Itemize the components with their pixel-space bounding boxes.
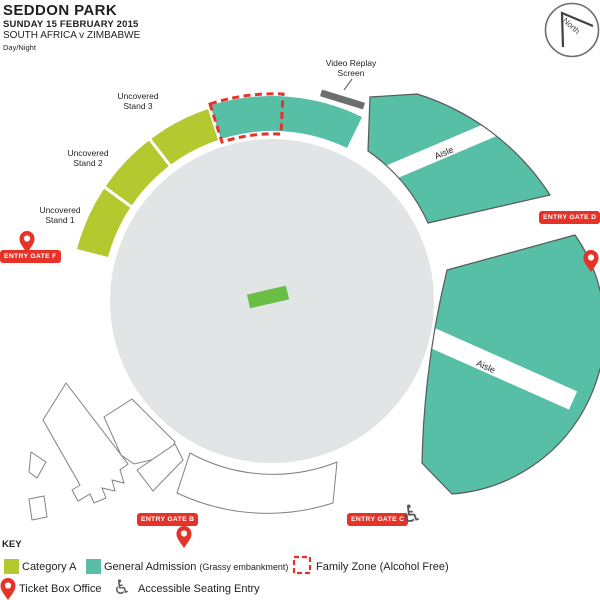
label-video-replay-screen: Video Replay Screen (319, 59, 383, 78)
seddon-park-seating-map: SEDDON PARK SUNDAY 15 FEBRUARY 2015 SOUT… (0, 0, 600, 600)
entry-gate-f-badge: ENTRY GATE F (0, 250, 61, 263)
legend-label-category-a: Category A (22, 561, 76, 573)
legend-swatch-category-a (4, 559, 19, 574)
page-title: SEDDON PARK (3, 2, 117, 19)
key-title: KEY (2, 539, 22, 550)
stand-label-line: Stand 2 (56, 159, 120, 169)
building-outline (29, 452, 46, 478)
event-fixture: SOUTH AFRICA v ZIMBABWE (3, 30, 140, 41)
stand-label-line: Stand 3 (106, 102, 170, 112)
wheelchair-icon: ♿ (401, 503, 423, 527)
entry-gate-c-badge: ENTRY GATE C (347, 513, 408, 526)
label-uncovered-stand-1: Uncovered Stand 1 (28, 206, 92, 225)
legend-label-family-zone: Family Zone (Alcohol Free) (316, 561, 449, 573)
legend-label-note: (Grassy embankment) (199, 562, 288, 572)
general-admission-wedge-lower (422, 235, 600, 494)
stand-label-line: Stand 1 (28, 216, 92, 226)
legend-label-general-admission: General Admission (Grassy embankment) (104, 561, 288, 573)
ticket-box-office-pin-gate-b (177, 526, 192, 548)
label-uncovered-stand-3: Uncovered Stand 3 (106, 92, 170, 111)
entry-gate-b-badge: ENTRY GATE B (137, 513, 198, 526)
video-replay-leader-line (344, 79, 352, 90)
event-date: SUNDAY 15 FEBRUARY 2015 (3, 19, 139, 30)
wheelchair-icon: ♿ (113, 578, 131, 598)
building-outline (29, 496, 47, 520)
legend-swatch-general-admission (86, 559, 101, 574)
legend-swatch-family-zone (294, 557, 310, 573)
video-label-line: Screen (319, 69, 383, 79)
ticket-box-office-pin-legend (1, 578, 16, 600)
stadium-map-graphic (0, 0, 600, 600)
legend-label-ticket-box-office: Ticket Box Office (19, 583, 102, 595)
entry-gate-d-badge: ENTRY GATE D (539, 211, 600, 224)
label-uncovered-stand-2: Uncovered Stand 2 (56, 149, 120, 168)
legend-label-accessible-seating: Accessible Seating Entry (138, 583, 260, 595)
event-session: Day/Night (3, 43, 36, 52)
legend-label-text: General Admission (104, 561, 196, 573)
